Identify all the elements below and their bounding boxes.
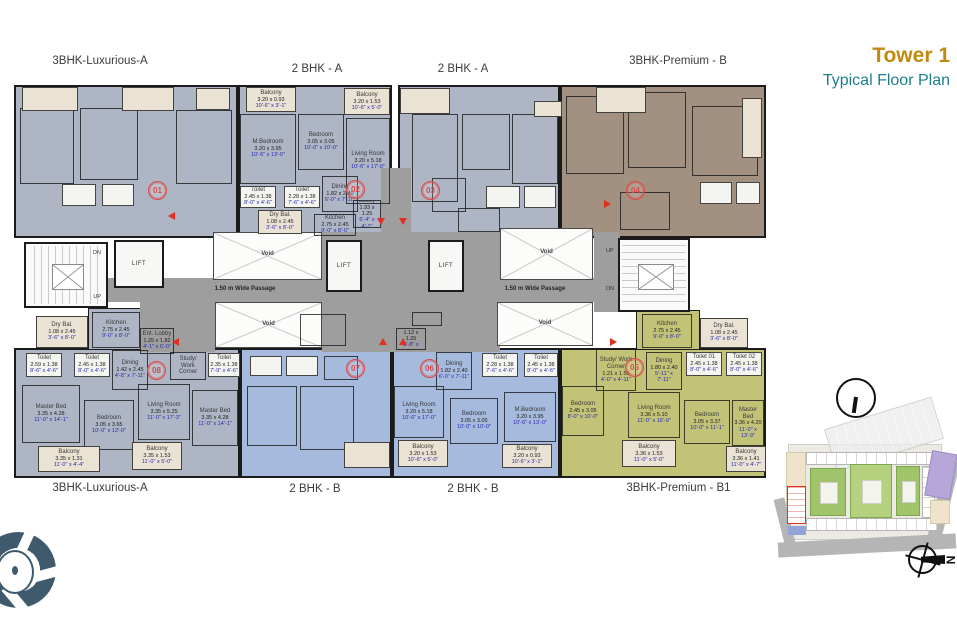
north-compass-icon: N — [908, 544, 954, 578]
void-area: Void — [500, 228, 593, 280]
lift-shaft: LIFT — [114, 240, 164, 288]
entry-arrow-icon — [399, 218, 407, 225]
entry-arrow-icon — [168, 212, 175, 220]
floor-plan-page: Tower 1 Typical Floor Plan 3BHK-Luxuriou… — [0, 0, 957, 625]
courtyard-green — [850, 464, 892, 518]
tower1-location-marker — [787, 486, 806, 524]
room-balcony: Balcony3.20 x 0.9310'-6" x 3'-1" — [246, 87, 296, 112]
room-partition — [736, 182, 760, 204]
room-balcony: Balcony3.36 x 1.5311'-0" x 5'-0" — [622, 440, 676, 467]
room-master-bed: Master Bed3.36 x 4.2011'-0" x 13'-9" — [732, 400, 764, 446]
room-ent-lobby: Ent. Lobby1.25 x 1.824'-1" x 6'-0" — [140, 328, 174, 354]
room-partition — [250, 356, 282, 376]
room-kitchen: Kitchen2.75 x 2.459'-0" x 8'-0" — [92, 312, 140, 348]
room-living-room: Living Room3.35 x 5.2511'-0" x 17'-3" — [138, 384, 190, 440]
room-bedroom: Bedroom2.45 x 3.058'-0" x 10'-0" — [562, 386, 604, 436]
room-dining: Dining1.82 x 2.406'-0" x 7'-11" — [436, 352, 472, 390]
unit-number-badge: 08 — [147, 361, 166, 380]
room-toilet-01: Toilet 012.45 x 1.388'-0" x 4'-6" — [686, 352, 722, 376]
void-label: Void — [501, 249, 592, 255]
void-area: Void — [497, 302, 593, 346]
room-partition — [512, 114, 558, 184]
stair-up-label: UP — [93, 294, 101, 300]
room-study-work-corner: Study/ Work Corner — [170, 352, 206, 380]
unit-type-label: 2 BHK - B — [428, 483, 518, 495]
right-entry-shaft — [594, 232, 620, 312]
room-partition — [344, 442, 390, 468]
room-balcony: Balcony3.36 x 1.4111'-0" x 4'-7" — [726, 446, 766, 472]
room-dining: Dining1.80 x 2.405'-11" x 7'-11" — [646, 352, 682, 390]
room-toilet: Toilet2.28 x 1.387'-6" x 4'-6" — [284, 186, 320, 208]
unit-type-label: 2 BHK - B — [270, 483, 360, 495]
courtyard-green — [896, 466, 920, 516]
unit-number-badge: 03 — [421, 181, 440, 200]
room-partition — [742, 98, 762, 158]
room-balcony: Balcony3.35 x 1.3111'-0" x 4'-4" — [38, 446, 100, 472]
room-master-bed: Master Bed3.35 x 4.2811'-0" x 14'-1" — [22, 385, 80, 443]
room-partition — [122, 87, 174, 111]
unit-number-badge: 04 — [626, 181, 645, 200]
room-partition — [596, 87, 646, 113]
unit-type-label: 3BHK-Premium - B — [608, 55, 748, 67]
building-row — [806, 518, 938, 531]
room-partition — [412, 312, 442, 326]
room-m-bedroom: M.Bedroom3.20 x 3.9510'-6" x 13'-0" — [504, 392, 556, 442]
lift-label: LIFT — [132, 261, 146, 267]
lift-shaft: LIFT — [326, 240, 362, 292]
room-dry-bal-: Dry Bal.1.08 x 2.453'-6" x 8'-0" — [700, 318, 748, 348]
tower-title: Tower 1 — [770, 44, 950, 68]
room-partition — [80, 108, 138, 180]
room-partition — [458, 208, 500, 232]
unit-type-label: 2 BHK - A — [272, 63, 362, 75]
entry-arrow-icon — [172, 338, 179, 346]
room-partition — [486, 186, 520, 208]
room-master-bed: Master Bed3.35 x 4.2811'-0" x 14'-1" — [192, 390, 238, 446]
unit-type-label: 2 BHK - A — [418, 63, 508, 75]
lift-shaft: LIFT — [428, 240, 464, 292]
passage-label: 1.50 m Wide Passage — [470, 286, 600, 292]
unit-type-label: 3BHK-Premium - B1 — [606, 482, 751, 494]
entry-arrow-icon — [604, 200, 611, 208]
unit-number-badge: 05 — [625, 358, 644, 377]
passage-label: 1.50 m Wide Passage — [180, 286, 310, 292]
unit-type-label: 3BHK-Luxurious-A — [30, 482, 170, 494]
room-living-room: Living Room3.36 x 5.1011'-0" x 16'-9" — [628, 392, 680, 438]
room-partition — [196, 88, 230, 110]
courtyard-green — [810, 468, 846, 516]
room-toilet-02: Toilet 022.45 x 1.388'-0" x 4'-6" — [726, 352, 762, 376]
room-partition — [20, 108, 74, 184]
watermark-logo — [0, 532, 56, 608]
stair-dn-label: DN — [93, 250, 101, 256]
room-partition — [247, 386, 297, 446]
unit-number-badge: 02 — [346, 180, 365, 199]
key-plan-marker — [836, 378, 876, 418]
room-partition — [462, 114, 510, 170]
room-toilet: Toilet2.59 x 1.388'-6" x 4'-6" — [26, 353, 62, 377]
room-bedroom: Bedroom3.05 x 3.0510'-0" x 10'-0" — [450, 398, 498, 444]
stair-dn-label: DN — [606, 286, 614, 292]
north-label: N — [944, 556, 957, 565]
room-dry-bal-: Dry Bal.1.08 x 2.453'-6" x 8'-0" — [258, 210, 302, 234]
lift-label: LIFT — [337, 263, 351, 269]
room-bedroom: Bedroom3.05 x 3.6510'-0" x 12'-0" — [84, 400, 134, 450]
room-partition — [524, 186, 556, 208]
room-partition — [700, 182, 732, 204]
room-partition — [102, 184, 134, 206]
room-partition — [22, 87, 78, 111]
entry-arrow-icon — [610, 338, 617, 346]
unit-type-label: 3BHK-Luxurious-A — [30, 55, 170, 67]
room-toilet: Toilet2.35 x 1.387'-9" x 4'-6" — [208, 353, 240, 377]
entry-arrow-icon — [379, 338, 387, 345]
lift-label: LIFT — [439, 263, 453, 269]
room-toilet: Toilet2.45 x 1.388'-0" x 4'-6" — [524, 353, 558, 377]
void-label: Void — [498, 320, 592, 326]
room-kitchen: Kitchen2.75 x 2.459'-0" x 8'-0" — [642, 314, 692, 348]
room-partition — [62, 184, 96, 206]
unit-number-badge: 06 — [420, 359, 439, 378]
room-kitchen: Kitchen2.75 x 2.459'-0" x 8'-0" — [314, 214, 356, 236]
room-toilet: Toilet2.45 x 1.388'-0" x 4'-6" — [74, 353, 110, 377]
unit-number-badge: 07 — [346, 359, 365, 378]
stair-up-label: UP — [606, 248, 614, 254]
room-balcony: Balcony3.20 x 0.9310'-6" x 3'-1" — [502, 444, 552, 468]
room-bedroom: Bedroom3.05 x 3.0510'-0" x 10'-0" — [298, 114, 344, 170]
room-partition — [176, 110, 232, 184]
room-living-room: Living Room3.20 x 5.1810'-6" x 17'-0" — [394, 386, 444, 438]
staircase-left: DN UP — [24, 242, 108, 308]
entry-arrow-icon — [377, 218, 385, 225]
room-m-bedroom: M.Bedroom3.20 x 3.9510'-6" x 13'-0" — [240, 114, 296, 184]
room-balcony: Balcony3.20 x 1.5310'-6" x 5'-0" — [344, 88, 390, 115]
room-partition — [620, 192, 670, 230]
room-bedroom: Bedroom3.05 x 3.3710'-0" x 11'-1" — [684, 400, 730, 444]
site-blue-strip — [788, 526, 806, 535]
site-beige-plot — [930, 500, 950, 524]
staircase-right: UP DN — [618, 238, 690, 312]
void-label: Void — [214, 251, 321, 257]
room-dry-bal-: Dry Bal.1.08 x 2.453'-6" x 8'-0" — [36, 316, 88, 348]
room-partition — [400, 88, 450, 114]
room-balcony: Balcony3.35 x 1.5311'-0" x 5'-0" — [132, 442, 182, 470]
unit-number-badge: 01 — [148, 181, 167, 200]
room-toilet: Toilet2.45 x 1.388'-0" x 4'-6" — [240, 186, 276, 208]
room-partition — [300, 386, 354, 450]
room-partition — [286, 356, 318, 376]
room-partition — [534, 101, 562, 117]
room-toilet: Toilet2.28 x 1.387'-6" x 4'-6" — [482, 353, 518, 377]
plan-subtitle: Typical Floor Plan — [760, 72, 950, 90]
entry-arrow-icon — [399, 338, 407, 345]
room-partition — [300, 314, 346, 346]
room-balcony: Balcony3.20 x 1.5310'-6" x 5'-0" — [398, 440, 448, 467]
void-area: Void — [213, 232, 322, 280]
